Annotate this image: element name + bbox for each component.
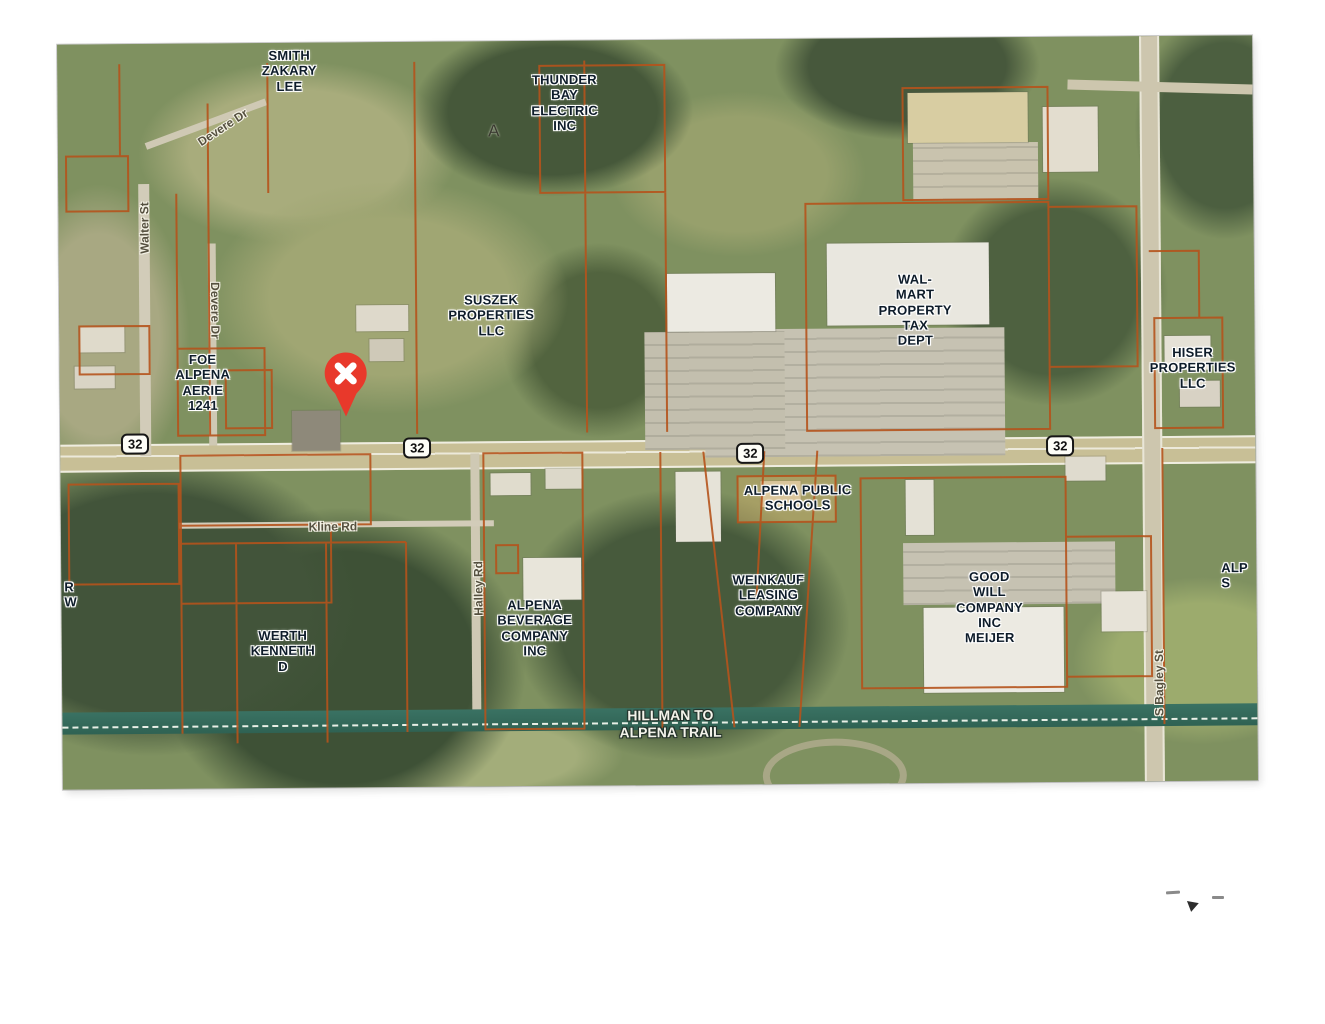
aerial-parcel-map: SMITH ZAKARY LEETHUNDER BAY ELECTRIC INC… [57, 35, 1258, 789]
scan-artifact-dash [1166, 891, 1180, 895]
scan-artifact-arrow-icon [1185, 901, 1199, 913]
scan-artifact-dash [1212, 896, 1224, 899]
route-shield-32-mideast: 32 [736, 443, 765, 464]
location-x-pin-icon [324, 351, 369, 422]
route-shield-32-west: 32 [121, 433, 150, 454]
route-shield-32-midwest: 32 [403, 437, 432, 458]
map-shields-layer: 32323232 [57, 35, 1258, 789]
trail-label: HILLMAN TO ALPENA TRAIL [619, 707, 721, 741]
transmission-tower-icon: A [488, 121, 500, 141]
route-shield-32-east: 32 [1046, 435, 1075, 456]
